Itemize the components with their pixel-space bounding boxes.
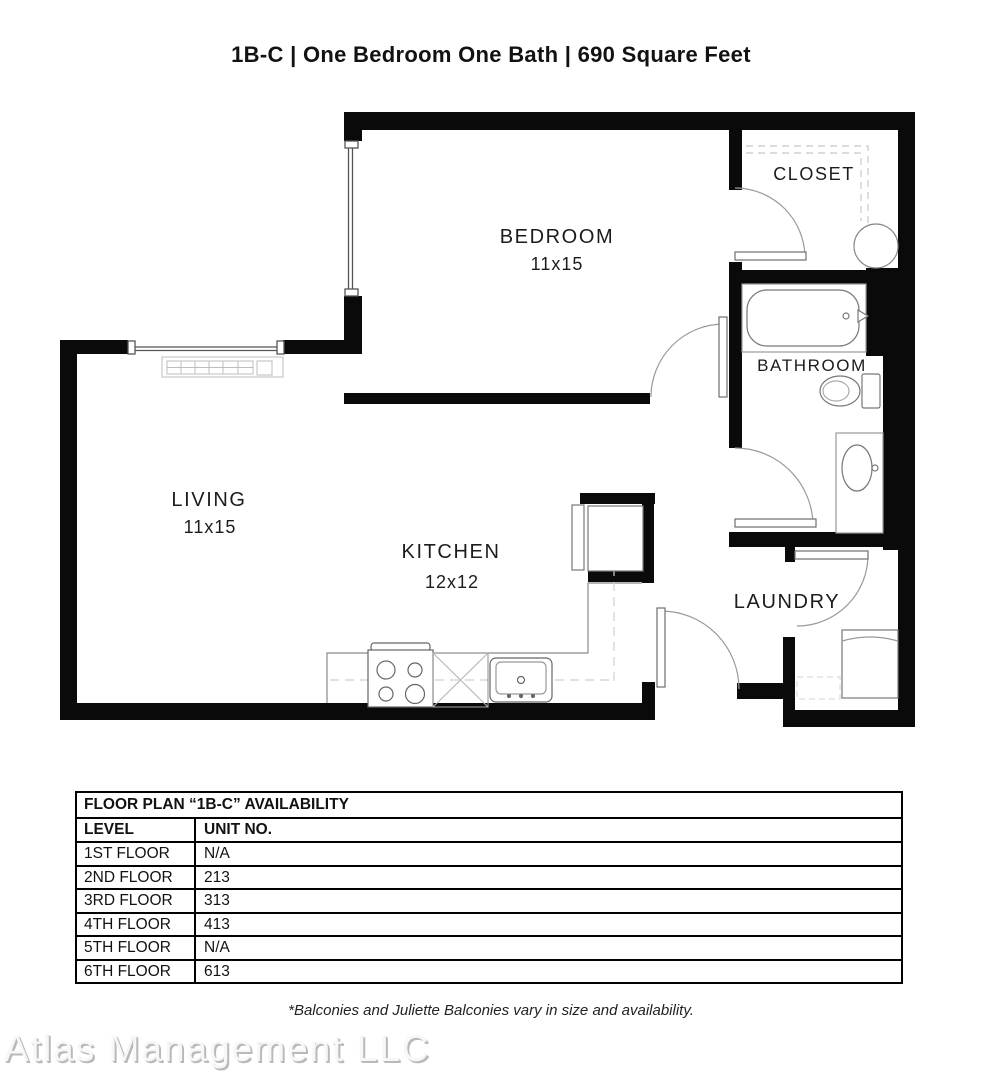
balcony-footnote: *Balconies and Juliette Balconies vary i…: [0, 1002, 982, 1019]
unit-cell: 313: [196, 890, 901, 912]
company-watermark: Atlas Management LLC: [4, 1028, 431, 1070]
column-header-level: LEVEL: [77, 819, 196, 841]
appliance-outline-icon: [797, 677, 840, 699]
water-heater-icon: [854, 224, 898, 268]
vanity-sink-icon: [836, 433, 883, 533]
level-cell: 3RD FLOOR: [77, 890, 196, 912]
closet-shelving-icon: [746, 146, 868, 224]
room-label-bedroom: BEDROOM: [500, 226, 615, 248]
toilet-icon: [820, 374, 880, 408]
level-cell: 1ST FLOOR: [77, 843, 196, 865]
level-cell: 5TH FLOOR: [77, 937, 196, 959]
table-row: 2ND FLOOR 213: [77, 867, 901, 891]
level-cell: 4TH FLOOR: [77, 914, 196, 936]
refrigerator-icon: [572, 505, 643, 571]
room-label-kitchen: KITCHEN: [402, 541, 501, 563]
washer-dryer-icon: [842, 630, 898, 698]
room-label-living: LIVING: [171, 489, 246, 511]
closet-door-icon: [735, 188, 806, 260]
availability-table-header: LEVEL UNIT NO.: [77, 819, 901, 843]
entry-door-icon: [657, 608, 739, 689]
room-label-closet: CLOSET: [773, 164, 855, 184]
availability-table: FLOOR PLAN “1B-C” AVAILABILITY LEVEL UNI…: [75, 791, 903, 984]
room-label-bathroom: BATHROOM: [757, 356, 867, 375]
unit-cell: 213: [196, 867, 901, 889]
table-row: 4TH FLOOR 413: [77, 914, 901, 938]
kitchen-sink-icon: [490, 658, 552, 702]
level-cell: 6TH FLOOR: [77, 961, 196, 983]
bathtub-icon: [742, 284, 868, 352]
unit-cell: N/A: [196, 937, 901, 959]
bedroom-door-icon: [651, 317, 727, 397]
table-row: 5TH FLOOR N/A: [77, 937, 901, 961]
column-header-unit-no: UNIT NO.: [196, 819, 901, 841]
unit-cell: 413: [196, 914, 901, 936]
unit-cell: 613: [196, 961, 901, 983]
laundry-door-icon: [795, 551, 868, 626]
walls: [60, 112, 915, 727]
table-row: 1ST FLOOR N/A: [77, 843, 901, 867]
floor-plan-page: 1B-C | One Bedroom One Bath | 690 Square…: [0, 0, 982, 1080]
availability-table-title: FLOOR PLAN “1B-C” AVAILABILITY: [77, 793, 901, 819]
living-window-icon: [128, 341, 284, 354]
bathroom-door-icon: [735, 448, 816, 527]
unit-cell: N/A: [196, 843, 901, 865]
room-dims-kitchen: 12x12: [425, 572, 479, 592]
room-dims-living: 11x15: [184, 517, 237, 537]
room-label-laundry: LAUNDRY: [734, 591, 840, 613]
table-row: 3RD FLOOR 313: [77, 890, 901, 914]
table-row: 6TH FLOOR 613: [77, 961, 901, 983]
floor-plan-drawing: BEDROOM 11x15 LIVING 11x15 KITCHEN 12x12…: [0, 0, 982, 780]
baseboard-heater-icon: [162, 357, 283, 377]
level-cell: 2ND FLOOR: [77, 867, 196, 889]
stove-icon: [368, 643, 433, 707]
room-dims-bedroom: 11x15: [531, 254, 584, 274]
bedroom-window-icon: [345, 141, 358, 296]
